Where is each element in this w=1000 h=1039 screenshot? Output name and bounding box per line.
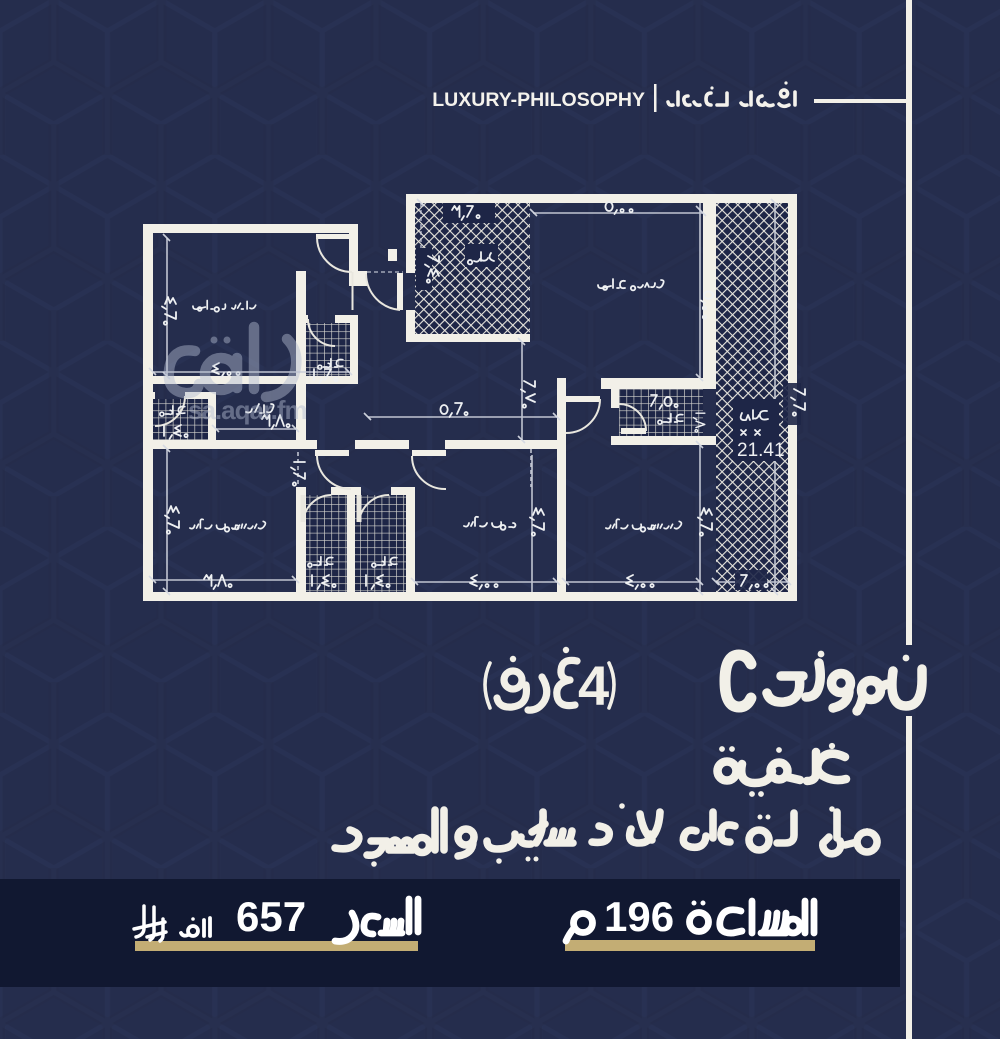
svg-text:196: 196 bbox=[604, 893, 674, 940]
svg-text:657: 657 bbox=[236, 893, 306, 940]
svg-text:4: 4 bbox=[578, 654, 609, 717]
svg-text:sa.aqar.fm: sa.aqar.fm bbox=[188, 395, 307, 425]
svg-text:21.41: 21.41 bbox=[737, 440, 785, 461]
svg-text:LUXURY-PHILOSOPHY: LUXURY-PHILOSOPHY bbox=[432, 89, 645, 111]
